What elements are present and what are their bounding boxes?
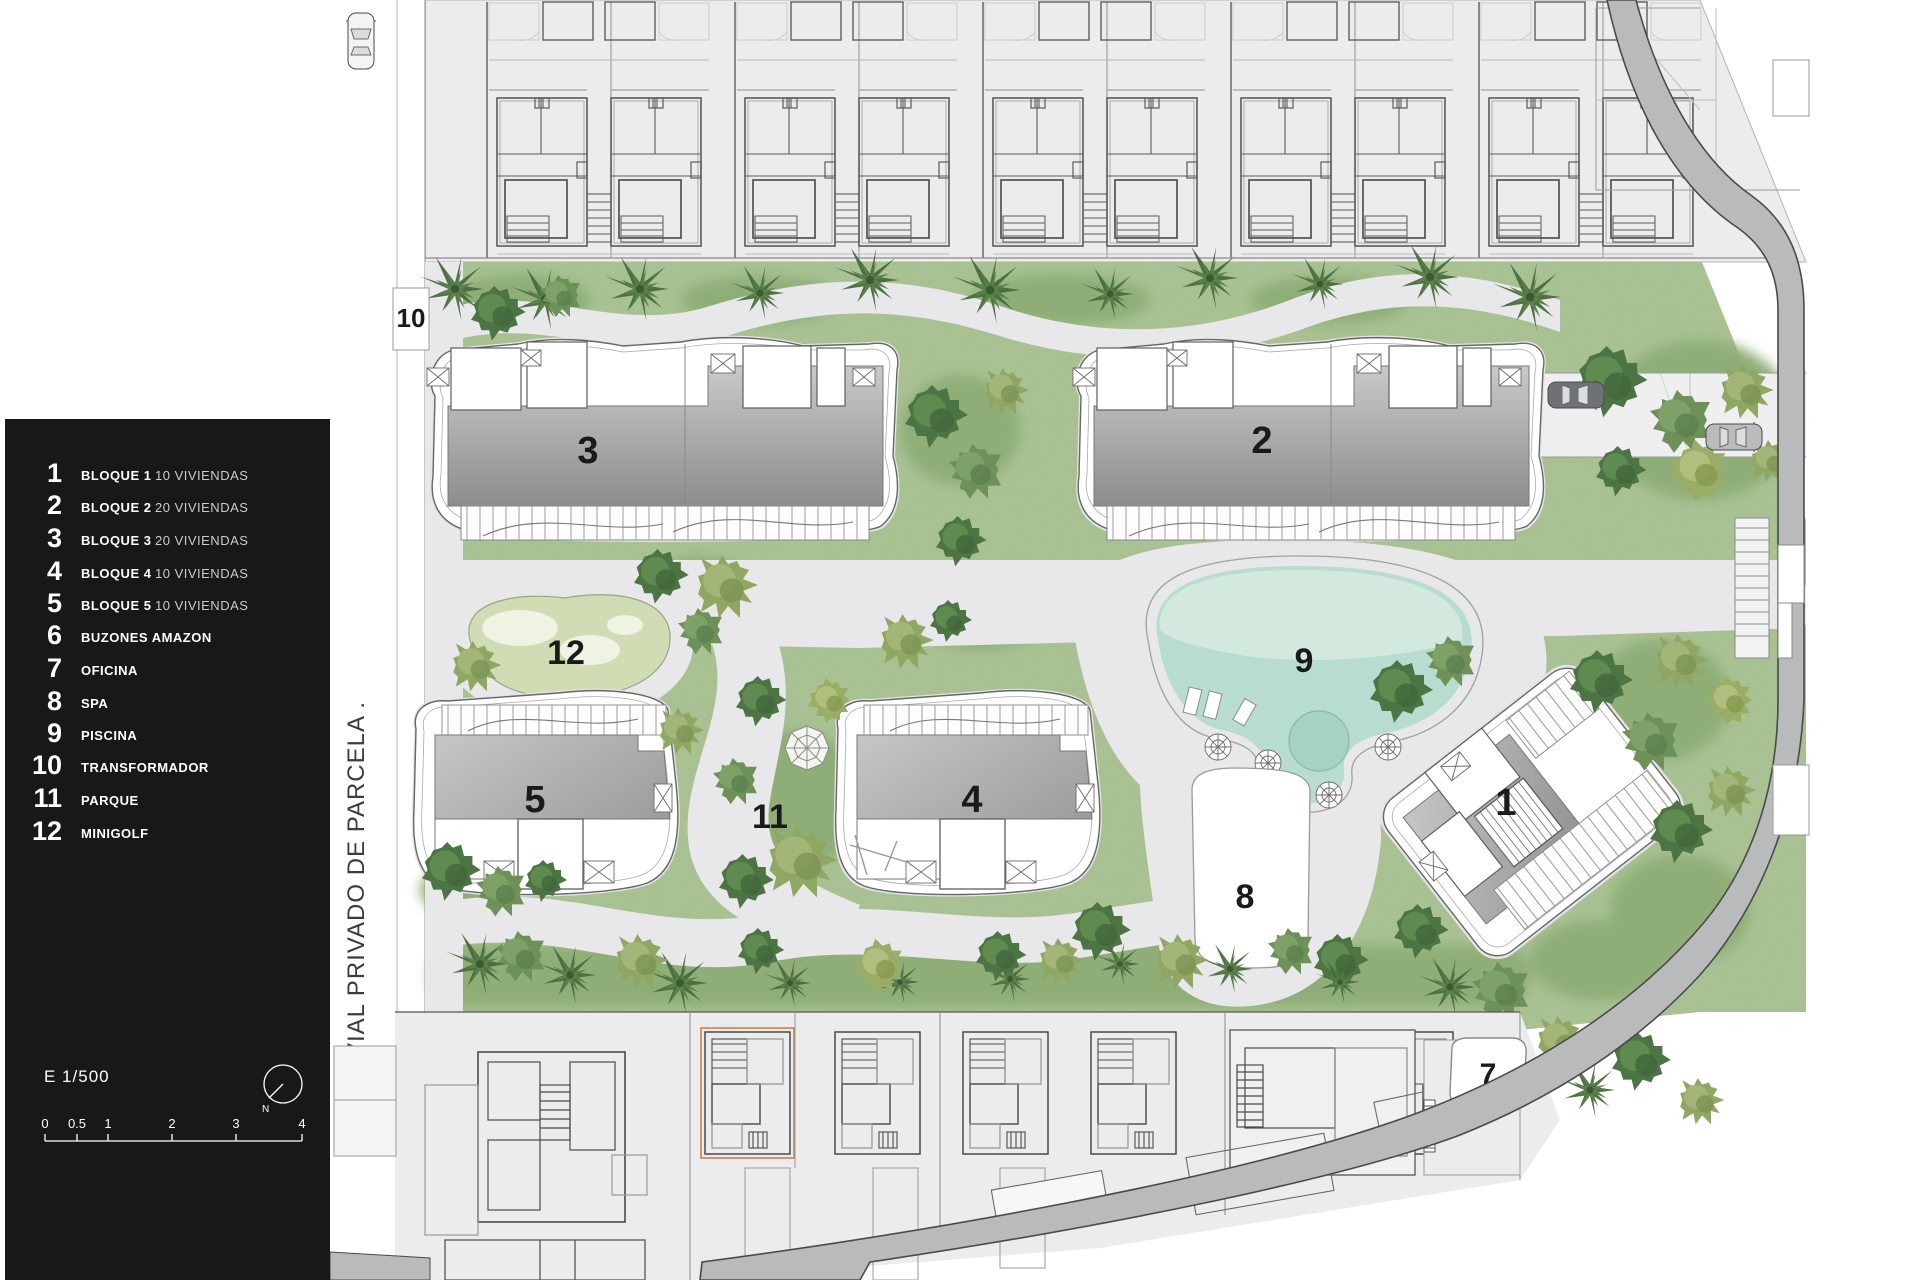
svg-text:9: 9 xyxy=(1295,642,1314,680)
svg-text:12: 12 xyxy=(547,634,585,672)
svg-text:6: 6 xyxy=(47,620,62,650)
svg-text:5: 5 xyxy=(47,588,62,618)
svg-text:BUZONES AMAZON: BUZONES AMAZON xyxy=(81,630,212,645)
svg-text:SPA: SPA xyxy=(81,696,108,711)
svg-text:1: 1 xyxy=(104,1116,111,1131)
svg-text:0.5: 0.5 xyxy=(68,1116,86,1131)
svg-text:TRANSFORMADOR: TRANSFORMADOR xyxy=(81,760,209,775)
svg-text:10: 10 xyxy=(397,303,426,333)
svg-text:BLOQUE 2: BLOQUE 2 xyxy=(81,500,151,515)
svg-text:1: 1 xyxy=(1495,782,1516,824)
svg-text:2: 2 xyxy=(47,490,62,520)
svg-text:2: 2 xyxy=(168,1116,175,1131)
svg-text:VIAL PRIVADO DE PARCELA .: VIAL PRIVADO DE PARCELA . xyxy=(343,701,370,1059)
svg-text:10: 10 xyxy=(32,750,62,780)
svg-text:8: 8 xyxy=(1236,878,1255,916)
svg-text:N: N xyxy=(262,1104,269,1115)
svg-text:2: 2 xyxy=(1251,420,1272,462)
svg-text:3: 3 xyxy=(232,1116,239,1131)
svg-text:OFICINA: OFICINA xyxy=(81,663,138,678)
svg-text:8: 8 xyxy=(47,686,62,716)
svg-text:11: 11 xyxy=(33,783,62,813)
svg-text:10 VIVIENDAS: 10 VIVIENDAS xyxy=(155,468,248,483)
svg-text:PARQUE: PARQUE xyxy=(81,793,139,808)
svg-text:3: 3 xyxy=(577,430,598,472)
svg-text:PISCINA: PISCINA xyxy=(81,728,137,743)
svg-text:4: 4 xyxy=(961,779,982,821)
svg-text:5: 5 xyxy=(524,779,545,821)
svg-text:3: 3 xyxy=(47,523,62,553)
svg-text:MINIGOLF: MINIGOLF xyxy=(81,826,149,841)
svg-text:10 VIVIENDAS: 10 VIVIENDAS xyxy=(155,598,248,613)
svg-text:4: 4 xyxy=(298,1116,305,1131)
svg-text:BLOQUE 5: BLOQUE 5 xyxy=(81,598,151,613)
svg-text:9: 9 xyxy=(47,718,62,748)
svg-text:12: 12 xyxy=(32,816,62,846)
svg-text:11: 11 xyxy=(752,798,788,836)
svg-text:4: 4 xyxy=(47,556,62,586)
svg-text:BLOQUE 3: BLOQUE 3 xyxy=(81,533,151,548)
svg-text:BLOQUE 4: BLOQUE 4 xyxy=(81,566,152,581)
svg-text:10 VIVIENDAS: 10 VIVIENDAS xyxy=(155,566,248,581)
svg-text:0: 0 xyxy=(41,1116,48,1131)
svg-text:BLOQUE 1: BLOQUE 1 xyxy=(81,468,151,483)
svg-text:1: 1 xyxy=(47,458,62,488)
svg-text:20 VIVIENDAS: 20 VIVIENDAS xyxy=(155,500,248,515)
svg-text:20 VIVIENDAS: 20 VIVIENDAS xyxy=(155,533,248,548)
svg-text:E 1/500: E 1/500 xyxy=(44,1067,110,1086)
svg-text:7: 7 xyxy=(47,653,62,683)
